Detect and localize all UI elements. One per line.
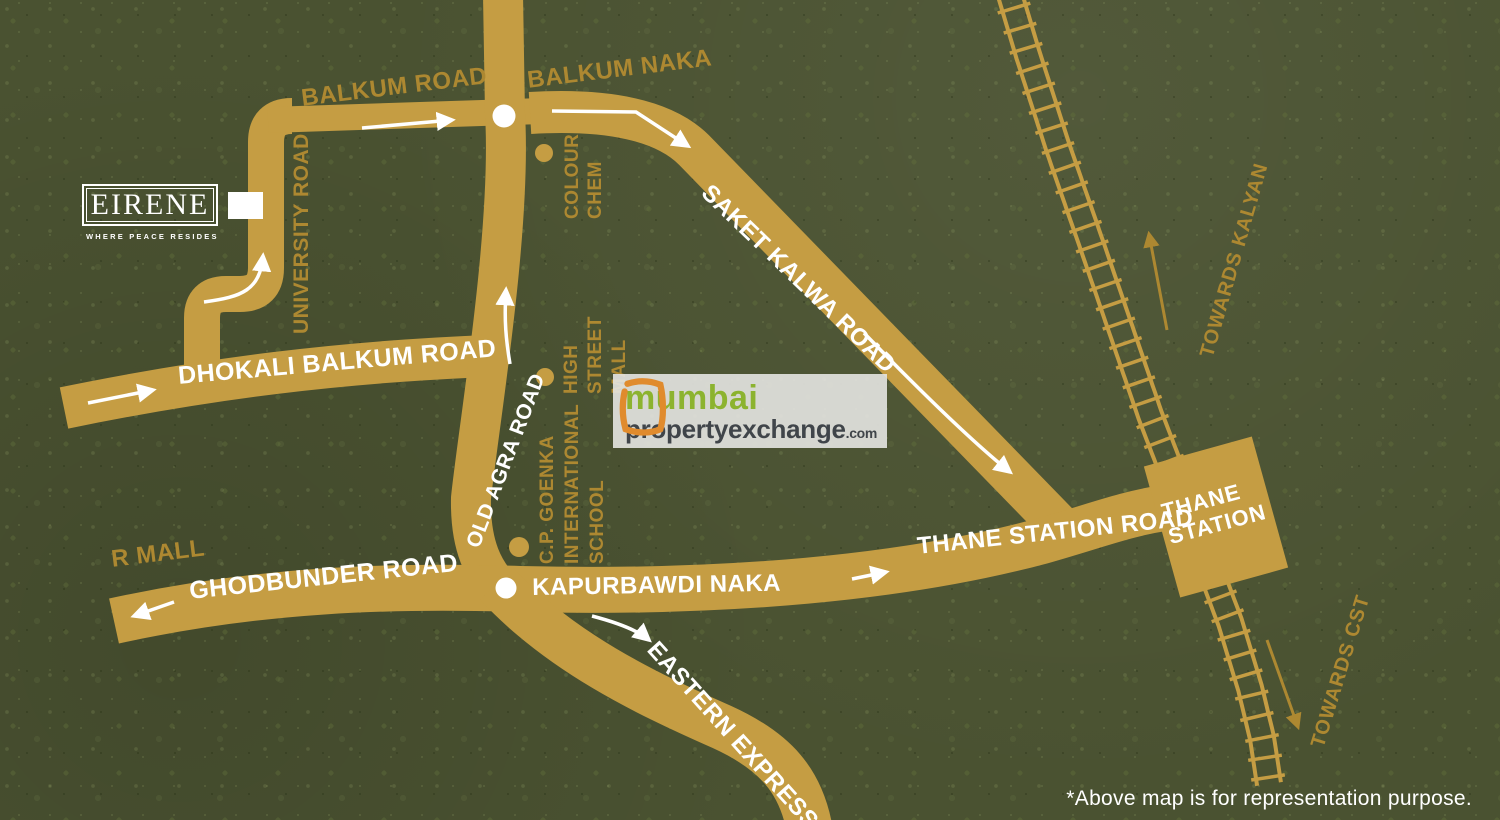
label-colour-chem: COLOUR CHEM (561, 134, 607, 219)
eirene-logo-tagline: WHERE PEACE RESIDES (82, 232, 218, 241)
junction-dot-kapurbawdi-naka (496, 578, 517, 599)
project-location-marker (228, 192, 263, 219)
label-high-street-mall-line2: STREET (584, 316, 608, 394)
label-cp-goenka-school: C.P. GOENKA INTERNATIONAL SCHOOL (535, 404, 610, 564)
brush-square-icon (613, 374, 671, 438)
location-map: BALKUM ROAD BALKUM NAKA UNIVERSITY ROAD … (0, 0, 1500, 820)
railway-rail (1020, 0, 1281, 782)
label-cp-goenka-line2: INTERNATIONAL (560, 404, 585, 564)
label-colour-chem-line2: CHEM (584, 134, 607, 219)
junction-dot-balkum-naka (493, 105, 516, 128)
watermark-mumbai-property-exchange: mumbai propertyexchange.com (613, 374, 887, 448)
road-university (202, 116, 292, 366)
label-university-road: UNIVERSITY ROAD (291, 133, 313, 334)
label-cp-goenka-line3: SCHOOL (585, 404, 610, 564)
tagline-text: WHERE PEACE RESIDES (86, 232, 219, 241)
label-colour-chem-line1: COLOUR (561, 134, 584, 219)
eirene-logo-name: EIRENE (91, 188, 210, 222)
eirene-logo: EIRENE WHERE PEACE RESIDES (82, 184, 218, 241)
arrow-eastern-express (592, 616, 649, 640)
label-cp-goenka-line1: C.P. GOENKA (535, 404, 560, 564)
road-balkum (268, 110, 572, 120)
watermark-tld: .com (846, 425, 877, 441)
landmark-dot-colour-chem (535, 144, 553, 162)
map-footnote: *Above map is for representation purpose… (1066, 787, 1472, 811)
label-kapurbawdi-naka: KAPURBAWDI NAKA (532, 571, 781, 601)
railway-track (992, 0, 1285, 786)
label-high-street-mall-line1: HIGH (560, 316, 584, 394)
eirene-logo-frame: EIRENE (82, 184, 218, 226)
arrow-towards-kalyan (1149, 234, 1167, 330)
railway-rail (997, 0, 1258, 786)
landmark-dot-cp-goenka-school (509, 537, 529, 557)
